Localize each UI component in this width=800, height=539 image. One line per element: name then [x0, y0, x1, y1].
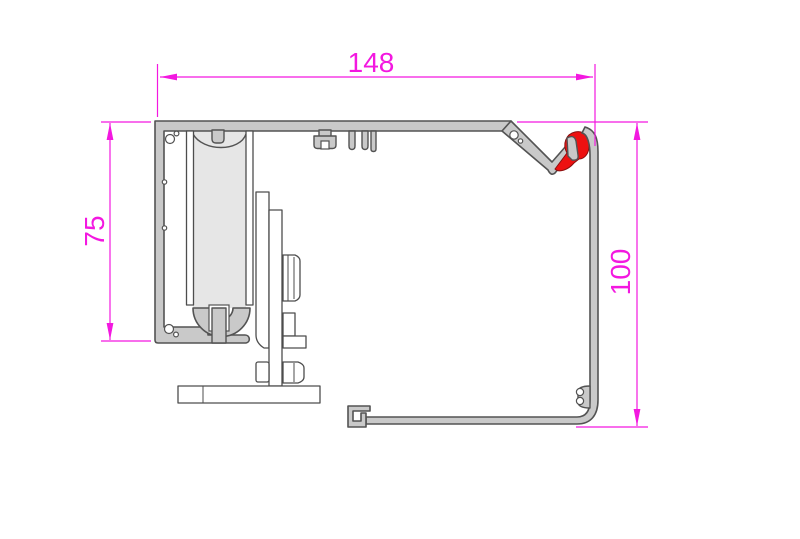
keyhole-notch-bottom-small	[174, 332, 179, 337]
outer-wall	[366, 127, 598, 424]
keyhole-notch-bottom	[165, 325, 174, 334]
dimension-left-height: 75	[79, 122, 151, 341]
arrow-up	[107, 123, 114, 140]
screw-boss-notch-2	[576, 397, 583, 404]
boss-fin	[371, 131, 376, 152]
roller-rail-left	[187, 131, 194, 305]
boss-t-notch	[321, 141, 329, 149]
flange-tongue	[212, 308, 226, 343]
flat-washer	[283, 336, 306, 348]
band-notch	[510, 131, 518, 139]
keyhole-notch-top	[166, 135, 175, 144]
arrow-down	[107, 323, 114, 340]
arrow-right	[576, 74, 593, 81]
hanger-plate	[269, 210, 282, 386]
wall-nick-upper	[162, 180, 166, 184]
profile-drawing: 148 75 100	[0, 0, 800, 539]
dim-left-height-value: 75	[79, 215, 110, 246]
wall-nick-lower	[162, 226, 166, 230]
screw-boss-notch-1	[576, 388, 583, 395]
roller-rail-right	[246, 131, 253, 305]
drawing-canvas: 148 75 100	[0, 0, 800, 539]
arrow-down	[634, 409, 641, 426]
boss-leg-1	[349, 131, 355, 150]
dim-right-height-value: 100	[605, 249, 636, 296]
roller-wheel-body	[193, 131, 246, 308]
profile-body	[155, 121, 598, 427]
keyhole-notch-top-small	[174, 131, 179, 136]
bottom-hook	[348, 406, 370, 427]
hanger-strap	[256, 192, 269, 348]
band-notch-small	[518, 139, 522, 143]
boss-leg-2	[362, 131, 368, 150]
dim-width-value: 148	[348, 47, 395, 78]
mounting-bracket	[178, 386, 320, 403]
spacer-block	[283, 313, 295, 336]
dimension-right-height: 100	[517, 122, 648, 427]
arrow-up	[634, 123, 641, 140]
arrow-left	[160, 74, 177, 81]
side-washer	[256, 362, 269, 382]
boss-center	[212, 130, 224, 143]
hex-bolt-head	[283, 255, 300, 301]
